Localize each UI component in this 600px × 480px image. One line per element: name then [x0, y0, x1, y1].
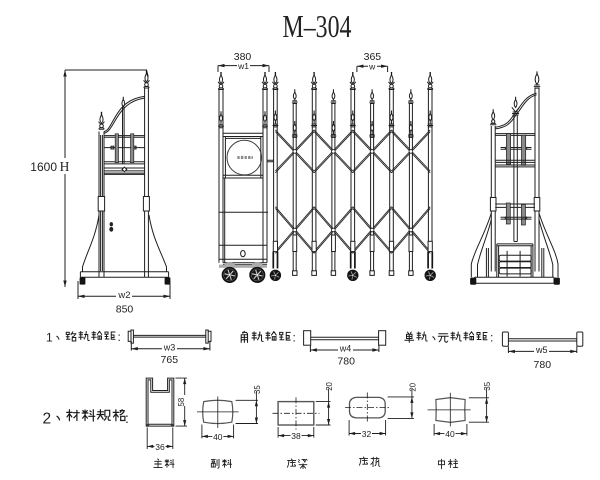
- svg-text::: :: [125, 410, 129, 426]
- svg-text:40: 40: [445, 429, 455, 439]
- svg-text:40: 40: [213, 432, 223, 442]
- svg-text:36: 36: [155, 442, 165, 452]
- svg-text:20: 20: [325, 381, 334, 390]
- svg-text:H: H: [60, 159, 70, 174]
- svg-text:35: 35: [483, 381, 492, 390]
- svg-text:35: 35: [253, 385, 262, 394]
- svg-text:380: 380: [234, 51, 252, 63]
- svg-text:38: 38: [291, 431, 301, 441]
- svg-text:850: 850: [116, 303, 134, 315]
- svg-text:w4: w4: [339, 343, 352, 353]
- svg-text:1: 1: [46, 331, 53, 345]
- svg-text:780: 780: [337, 356, 355, 368]
- svg-text:w2: w2: [117, 290, 130, 301]
- svg-text:32: 32: [362, 429, 372, 439]
- svg-text::: :: [118, 330, 121, 344]
- svg-text:20: 20: [409, 382, 418, 391]
- svg-text:w3: w3: [163, 342, 176, 352]
- svg-text:365: 365: [364, 51, 382, 63]
- svg-text:1600: 1600: [30, 160, 57, 174]
- svg-text:765: 765: [161, 354, 179, 366]
- svg-text:780: 780: [534, 359, 552, 371]
- svg-text:M–304: M–304: [283, 8, 352, 44]
- svg-text:2: 2: [43, 411, 52, 428]
- svg-text::: :: [490, 331, 493, 345]
- svg-text::: :: [293, 331, 296, 345]
- svg-text:w5: w5: [535, 345, 548, 355]
- svg-text:58: 58: [177, 398, 186, 407]
